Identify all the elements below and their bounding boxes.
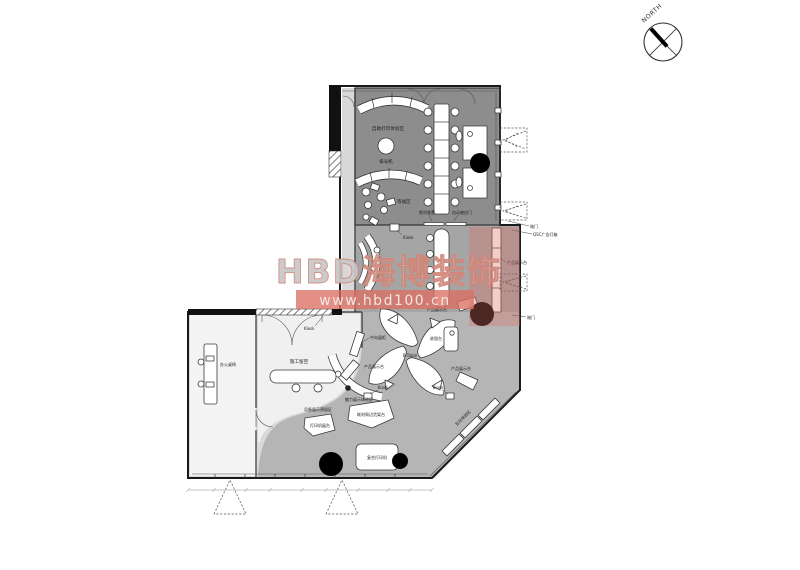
entry-swing-symbol <box>326 480 358 514</box>
label-equipment-reserve: 设备展示预留区 <box>304 406 332 412</box>
label-b-table: B-Table <box>403 353 418 358</box>
label-hidden-door-top: 暗门 <box>530 223 538 229</box>
label-product-display-left: 产品展示台 <box>364 363 384 369</box>
entry-swing-symbol <box>214 480 246 514</box>
round-table <box>378 138 394 154</box>
label-kiosk-3: Kiosk <box>378 385 389 390</box>
solid-wall-segment <box>329 85 341 151</box>
compass-north-label: NORTH <box>641 3 664 25</box>
label-display-unit: 陈列装置 <box>419 209 435 215</box>
label-construction-void: 施工留空 <box>290 358 309 365</box>
kiosk-unit <box>446 393 454 399</box>
label-printer-stand: 打印机展台 <box>310 422 330 428</box>
north-compass: NORTH <box>636 3 690 69</box>
office-room <box>190 314 256 476</box>
column <box>319 452 343 476</box>
column <box>470 153 490 173</box>
cashier-kiosk <box>444 327 458 351</box>
label-charm-display: 魅力展示体验区 <box>345 396 373 402</box>
vent-symbol <box>500 202 527 220</box>
floor-plan-svg: 自助打印体验区 排号机 等候区 陈列装置 自动感应门 暗门 QSC广告灯箱 产品… <box>0 0 800 570</box>
vent-symbol <box>500 128 527 152</box>
label-office-desk: 办公桌椅 <box>220 361 236 367</box>
label-cashier: 收银台 <box>430 335 442 341</box>
hatched-wall-segment <box>329 151 341 177</box>
compass-needle <box>651 29 667 47</box>
watermark-brand: HBD海博装饰 <box>276 252 502 291</box>
label-ad-lightbox: QSC广告灯箱 <box>533 231 557 237</box>
label-product-display-se: 产品展示台 <box>451 365 471 371</box>
label-queue-machine: 排号机 <box>379 158 393 165</box>
label-consumables-shelf: 耗材周边货架台 <box>357 411 385 417</box>
label-hidden-door-mid: 暗门 <box>527 314 535 320</box>
dimension-line <box>186 488 434 492</box>
label-waiting-area: 等候区 <box>397 198 411 205</box>
label-auto-door: 自动感应门 <box>452 209 472 215</box>
watermark-url: www.hbd100.cn <box>319 293 450 309</box>
label-kiosk-4: Kiosk <box>433 385 444 390</box>
label-island-showcase: 中岛展柜 <box>370 334 386 340</box>
label-kiosk-2: Kiosk <box>304 326 315 331</box>
label-mfp: 复合打印机 <box>367 454 387 460</box>
label-kiosk-1: Kiosk <box>403 235 414 240</box>
label-self-service-area: 自助打印体验区 <box>372 125 405 132</box>
kiosk-unit <box>390 224 399 231</box>
column <box>392 453 408 469</box>
floor-plan-page: 自助打印体验区 排号机 等候区 陈列装置 自动感应门 暗门 QSC广告灯箱 产品… <box>0 0 800 570</box>
